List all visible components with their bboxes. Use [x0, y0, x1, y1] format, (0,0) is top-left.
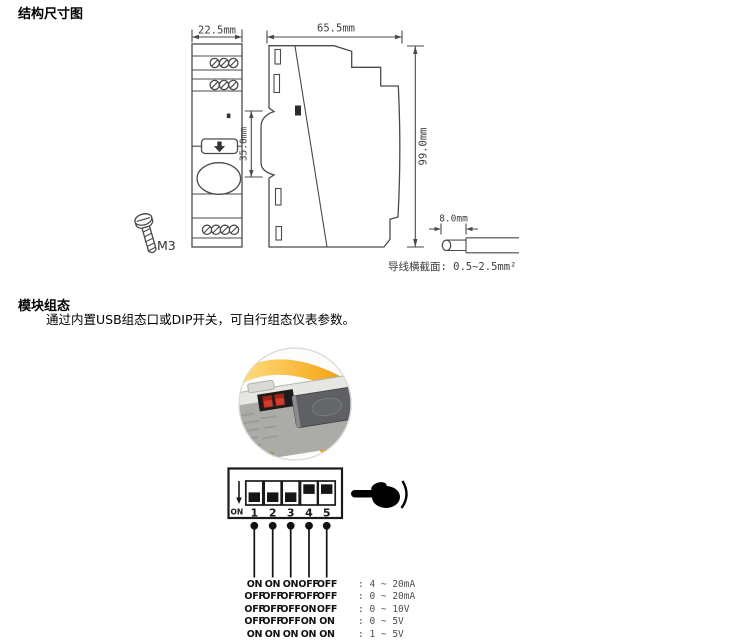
- dip-table-row: OFFOFFOFFOFFOFF: 0 ~ 20mA: [0, 591, 733, 603]
- on-label: ON: [231, 508, 244, 517]
- config-description: 通过内置USB组态口或DIP开关，可自行组态仪表参数。: [46, 309, 355, 328]
- side-view: [261, 46, 400, 247]
- dip-table-row: ONONONOFFOFF: 4 ~ 20mA: [0, 579, 733, 591]
- dip-state-cell: ON: [313, 616, 341, 627]
- dip-state-cell: OFF: [313, 579, 341, 590]
- label-area: [197, 163, 241, 195]
- wire-illustration: [442, 238, 519, 253]
- dip-switch-2[interactable]: 2: [264, 481, 281, 578]
- front-view: [192, 44, 242, 247]
- dip-state-cell: ON: [313, 629, 341, 640]
- dip-state-cell: OFF: [313, 604, 341, 615]
- m3-screw: M3: [134, 212, 176, 255]
- svg-text:2: 2: [269, 507, 277, 520]
- dip-switch-diagram: ON 1 2 3 4 5: [222, 463, 422, 583]
- svg-text:1: 1: [250, 507, 258, 520]
- module-photo: [233, 346, 359, 464]
- dip-table-row: OFFOFFOFFONON: 0 ~ 5V: [0, 616, 733, 628]
- signal-range-label: : 0 ~ 10V: [358, 604, 478, 615]
- signal-range-label: : 0 ~ 5V: [358, 616, 478, 627]
- svg-text:5: 5: [323, 507, 331, 520]
- dim-height: 99.0mm: [407, 46, 430, 247]
- dip-switch-1[interactable]: 1: [246, 481, 263, 578]
- dim-depth-label: 65.5mm: [317, 23, 355, 35]
- front-usb-port: [227, 114, 231, 119]
- dim-width: 22.5mm: [192, 25, 242, 43]
- pointing-hand-icon: [351, 480, 407, 508]
- wire-cross-section-note: 导线横截面: 0.5~2.5mm²: [388, 260, 516, 273]
- dip-table-row: OFFOFFOFFONOFF: 0 ~ 10V: [0, 604, 733, 616]
- side-usb-port: [295, 106, 301, 116]
- dim-rail-label: 35.0mm: [238, 127, 249, 162]
- signal-range-label: : 0 ~ 20mA: [358, 591, 478, 602]
- dip-table-row: ONONONONON: 1 ~ 5V: [0, 629, 733, 641]
- section-title-structure: 结构尺寸图: [18, 3, 83, 22]
- dip-switch-5[interactable]: 5: [318, 481, 335, 578]
- dim-height-label: 99.0mm: [418, 128, 430, 166]
- signal-range-label: : 4 ~ 20mA: [358, 579, 478, 590]
- svg-text:4: 4: [305, 507, 313, 520]
- dim-strip: 8.0mm: [429, 214, 478, 235]
- dip-switch-4[interactable]: 4: [301, 481, 318, 578]
- dimension-drawing: 22.5mm 65.5mm M3 35.: [125, 20, 525, 280]
- m3-label: M3: [157, 238, 176, 253]
- dim-strip-label: 8.0mm: [439, 214, 468, 225]
- signal-range-label: : 1 ~ 5V: [358, 629, 478, 640]
- dim-depth: 65.5mm: [267, 23, 402, 44]
- dip-state-cell: OFF: [313, 591, 341, 602]
- dim-width-label: 22.5mm: [198, 25, 236, 37]
- svg-text:3: 3: [287, 507, 295, 520]
- dip-switch-3[interactable]: 3: [282, 481, 299, 578]
